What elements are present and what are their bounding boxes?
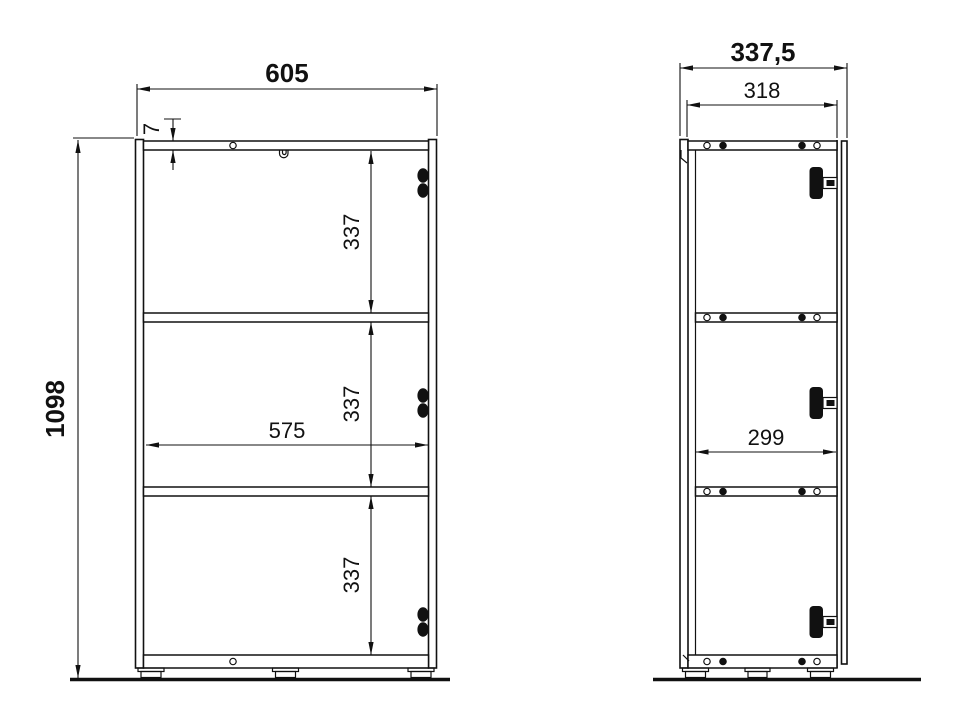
door-hinge-icon: [810, 606, 838, 638]
door-hinge-icon: [810, 387, 838, 419]
keyhole-hanger-icon: [280, 150, 289, 158]
foot: [808, 668, 834, 678]
front-view-dimensions: 605 1098 7 337 337 337 575: [40, 58, 437, 678]
dim-compartment-2-label: 337: [339, 386, 364, 423]
front-top-panel: [144, 141, 429, 150]
front-shelf-lower: [144, 487, 429, 496]
drawing-canvas: 605 1098 7 337 337 337 575: [0, 0, 960, 720]
front-shelf-upper: [144, 313, 429, 322]
dim-interior-width-label: 575: [269, 418, 306, 443]
dim-overall-width-label: 605: [265, 58, 308, 88]
door-hinge-icon: [417, 388, 428, 417]
foot: [408, 668, 434, 678]
screw-hole: [230, 658, 236, 664]
door-hinge-icon: [810, 167, 838, 199]
dim-compartment-3-label: 337: [339, 557, 364, 594]
cabinet-technical-drawing: 605 1098 7 337 337 337 575: [0, 0, 960, 720]
door-hinge-icon: [417, 607, 428, 636]
foot: [683, 668, 709, 678]
side-door-panel: [842, 141, 848, 664]
door-hinge-icon: [417, 168, 428, 197]
dim-body-depth-label: 318: [744, 78, 781, 103]
foot: [273, 668, 299, 678]
dim-compartment-1-label: 337: [339, 214, 364, 251]
dim-top-thickness-label: 7: [139, 123, 164, 135]
foot: [138, 668, 164, 678]
dim-overall-height-label: 1098: [40, 380, 70, 438]
screw-hole: [230, 142, 236, 148]
side-view: [653, 140, 921, 680]
foot: [745, 668, 770, 678]
dim-interior-depth-label: 299: [748, 425, 785, 450]
front-view: [70, 140, 450, 680]
front-right-side-panel: [429, 140, 437, 669]
side-back-panel: [680, 140, 688, 669]
dim-total-depth-label: 337,5: [730, 37, 795, 67]
front-left-side-panel: [136, 140, 144, 669]
front-bottom-panel: [144, 655, 429, 668]
